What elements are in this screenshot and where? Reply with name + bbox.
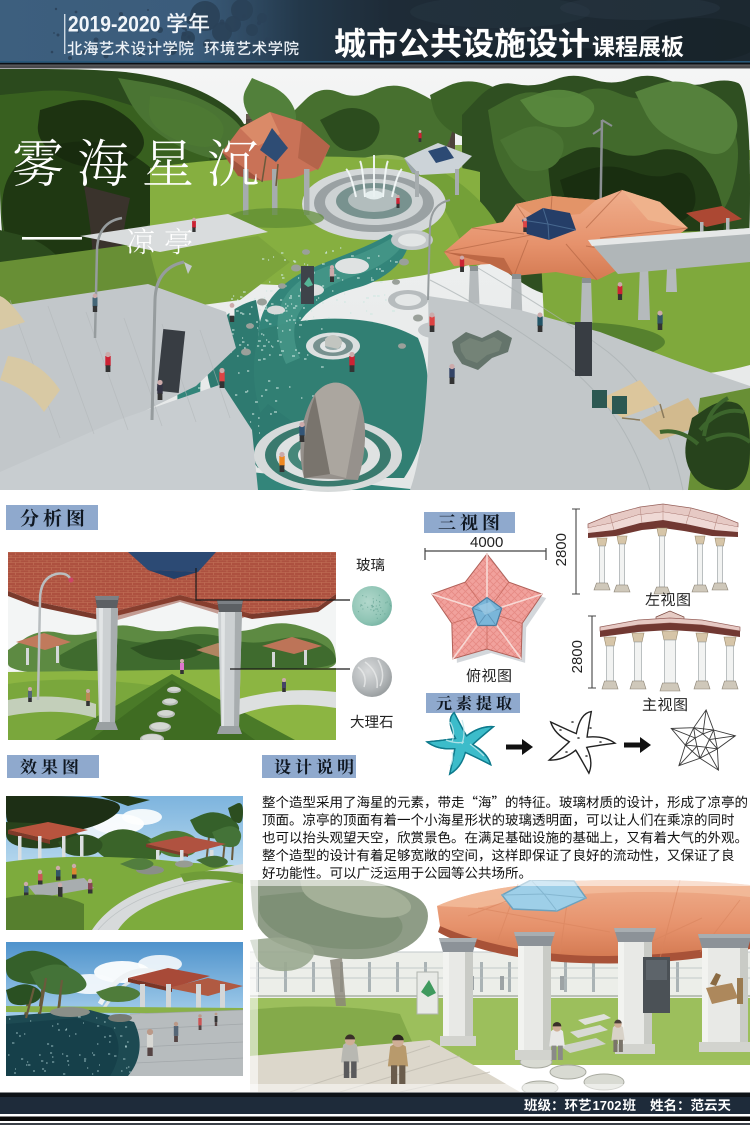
svg-text:1702: 1702 — [593, 1098, 622, 1113]
svg-text:4000: 4000 — [470, 534, 503, 551]
svg-text:2800: 2800 — [553, 533, 570, 566]
svg-text:2800: 2800 — [569, 640, 586, 673]
svg-text:2019-2020: 2019-2020 — [68, 12, 160, 37]
